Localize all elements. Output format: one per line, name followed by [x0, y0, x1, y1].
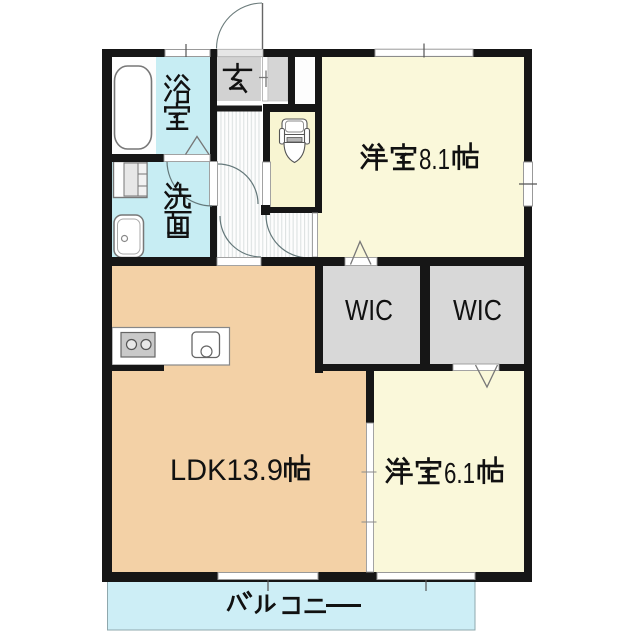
- svg-text:LDK13.9: LDK13.9: [170, 454, 283, 487]
- svg-text:WIC: WIC: [453, 295, 502, 327]
- svg-text:8.1: 8.1: [419, 144, 450, 176]
- svg-text:6.1: 6.1: [444, 458, 475, 490]
- svg-text:WIC: WIC: [345, 295, 393, 327]
